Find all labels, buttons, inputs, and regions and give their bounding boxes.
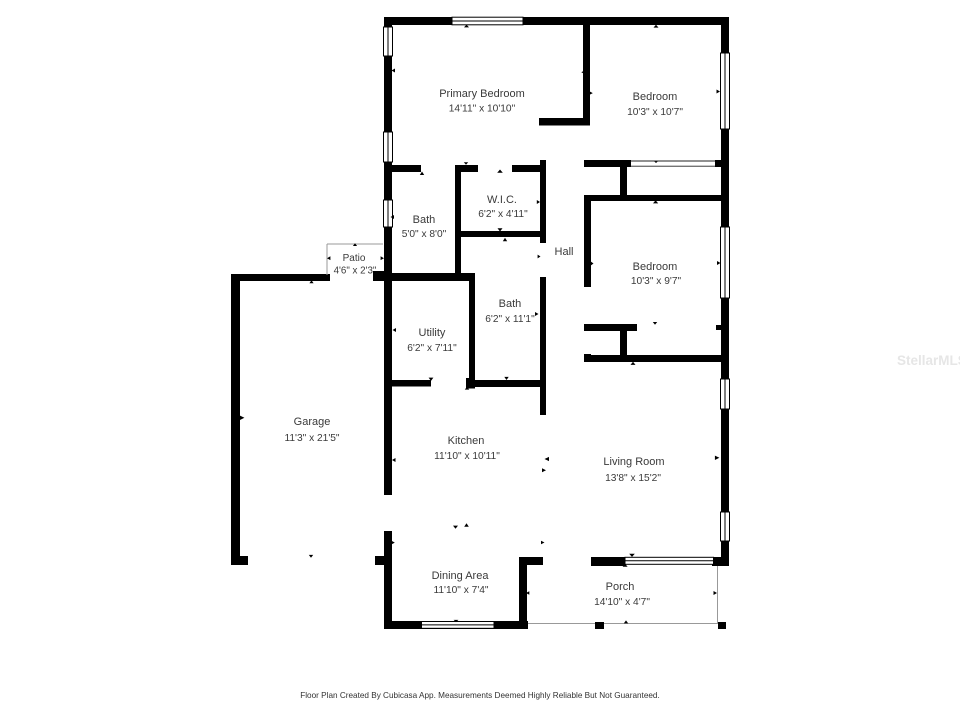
svg-text:Living Room: Living Room bbox=[603, 456, 664, 468]
svg-text:11'10" x 10'11": 11'10" x 10'11" bbox=[434, 451, 500, 462]
svg-text:11'10" x 7'4": 11'10" x 7'4" bbox=[433, 585, 488, 596]
svg-text:10'3" x 9'7": 10'3" x 9'7" bbox=[631, 276, 682, 287]
svg-text:Patio: Patio bbox=[343, 253, 366, 264]
svg-text:Porch: Porch bbox=[606, 581, 635, 593]
svg-text:Bedroom: Bedroom bbox=[633, 91, 678, 103]
svg-text:13'8" x 15'2": 13'8" x 15'2" bbox=[605, 473, 661, 484]
svg-text:14'11" x 10'10": 14'11" x 10'10" bbox=[449, 104, 516, 115]
svg-text:Bedroom: Bedroom bbox=[633, 261, 678, 273]
svg-text:5'0" x 8'0": 5'0" x 8'0" bbox=[402, 229, 447, 240]
svg-text:Floor Plan Created By Cubicasa: Floor Plan Created By Cubicasa App. Meas… bbox=[300, 691, 660, 700]
svg-text:Bath: Bath bbox=[499, 298, 522, 310]
svg-text:Kitchen: Kitchen bbox=[448, 435, 485, 447]
svg-text:Dining Area: Dining Area bbox=[432, 570, 490, 582]
svg-text:Garage: Garage bbox=[294, 416, 331, 428]
svg-text:4'6" x 2'3": 4'6" x 2'3" bbox=[334, 266, 377, 277]
svg-text:6'2" x 11'1": 6'2" x 11'1" bbox=[485, 314, 535, 325]
svg-text:StellarMLS: StellarMLS bbox=[897, 353, 960, 368]
svg-text:6'2" x 7'11": 6'2" x 7'11" bbox=[407, 343, 457, 354]
svg-text:W.I.C.: W.I.C. bbox=[487, 194, 517, 206]
svg-text:Utility: Utility bbox=[419, 327, 446, 339]
svg-text:Primary Bedroom: Primary Bedroom bbox=[439, 88, 525, 100]
svg-text:14'10" x 4'7": 14'10" x 4'7" bbox=[594, 597, 650, 608]
svg-text:10'3" x 10'7": 10'3" x 10'7" bbox=[627, 107, 683, 118]
svg-text:6'2" x 4'11": 6'2" x 4'11" bbox=[478, 209, 528, 220]
svg-text:11'3" x 21'5": 11'3" x 21'5" bbox=[284, 433, 339, 444]
svg-text:Hall: Hall bbox=[555, 246, 574, 258]
svg-text:Bath: Bath bbox=[413, 214, 436, 226]
